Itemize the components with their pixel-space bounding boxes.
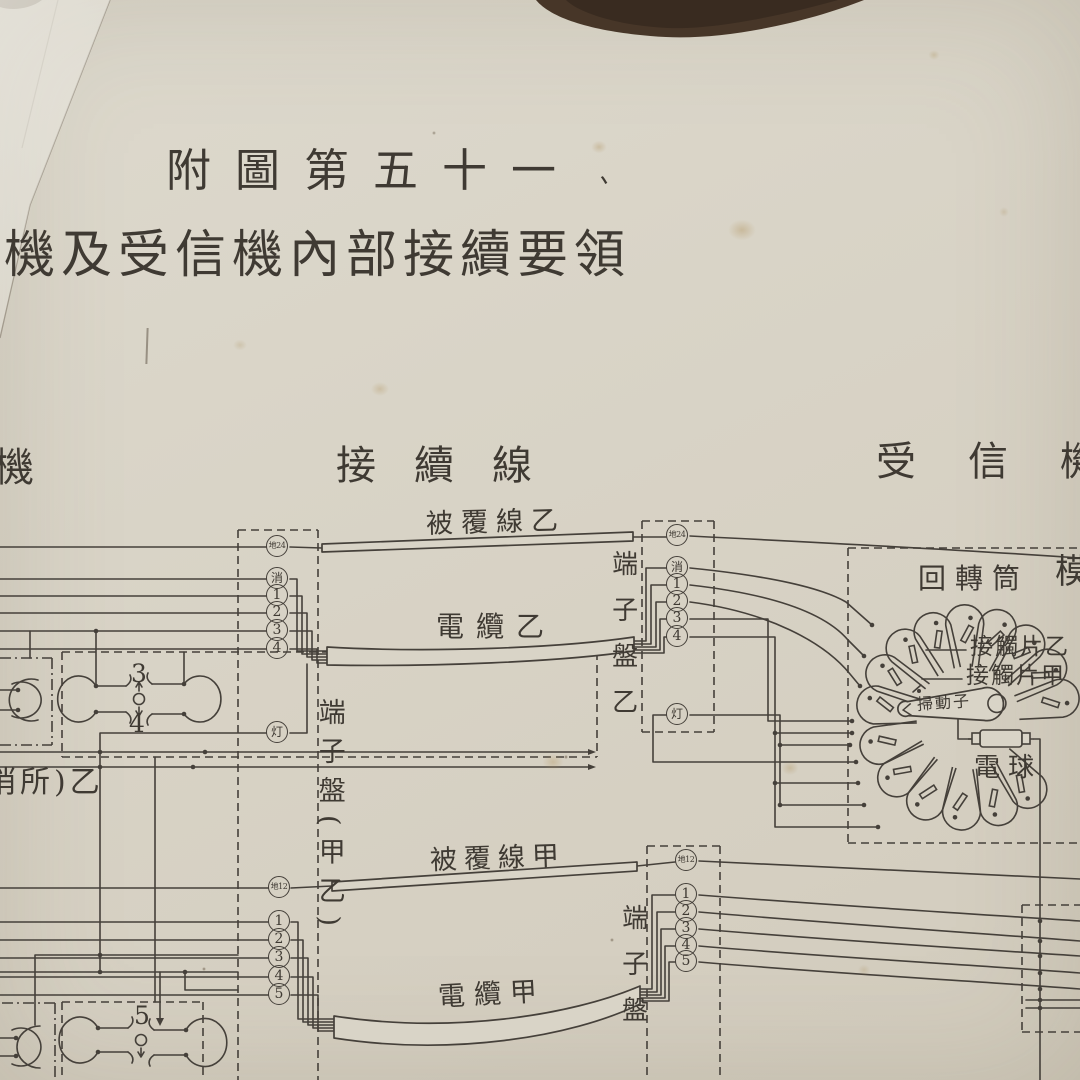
post-note-label: 哨所)乙 [0, 766, 104, 799]
section-header-transmitter: 機 [0, 446, 34, 490]
terminal-earth-24: 地24 [666, 524, 688, 546]
terminal-board-a-label: 端子盤 [618, 904, 647, 1044]
section-header-connection-line: 接續線 [336, 444, 570, 488]
cable-a-label: 電纜甲 [437, 977, 546, 1012]
terminal-board-b-label: 端子盤乙 [608, 550, 637, 746]
figure-number-title: 附圖第五十一 [166, 146, 580, 196]
terminal-5: 5 [268, 983, 290, 1005]
terminal-board-center-label: 端子盤(甲乙) [314, 698, 344, 978]
switch-position-3-label: 3 [131, 660, 147, 688]
contact-piece-b-label: 接觸片乙 [970, 635, 1070, 660]
switch-position-5-label: 5 [134, 1002, 150, 1030]
section-header-receiver: 受信機 [876, 440, 1080, 484]
terminal-earth-12: 地12 [675, 849, 697, 871]
terminal-lamp: 灯 [266, 721, 288, 743]
rotating-drum-label: 回轉筒 [918, 564, 1029, 595]
bulb-holder [968, 730, 1034, 747]
wiper-label: 掃動子 [916, 692, 971, 713]
photographed-wiring-diagram: 附圖第五十一 機及受信機內部接續要領 、 機 接續線 受信機 被覆線乙 電纜乙 … [0, 0, 1080, 1080]
figure-subject-title: 機及受信機內部接續要領 [4, 228, 631, 284]
terminal-board-boxes [62, 521, 1080, 1080]
terminal-earth-24: 地24 [266, 535, 288, 557]
covered-wire-b-label: 被覆線乙 [426, 506, 567, 539]
connection-cables [322, 532, 640, 1045]
terminal-5: 5 [675, 950, 697, 972]
covered-wire-a-label: 被覆線甲 [430, 842, 567, 876]
terminal-4: 4 [266, 637, 288, 659]
bulb-label: 電球 [974, 754, 1042, 783]
clipped-edge-character: 模 [1055, 554, 1080, 591]
terminal-lamp: 灯 [666, 703, 688, 725]
cable-b-label: 電纜乙 [436, 612, 556, 643]
switch-position-4-label: 4 [129, 710, 145, 738]
terminal-4: 4 [666, 625, 688, 647]
contact-piece-a-label: 接觸片甲 [966, 664, 1066, 689]
terminal-earth-12: 地12 [268, 876, 290, 898]
